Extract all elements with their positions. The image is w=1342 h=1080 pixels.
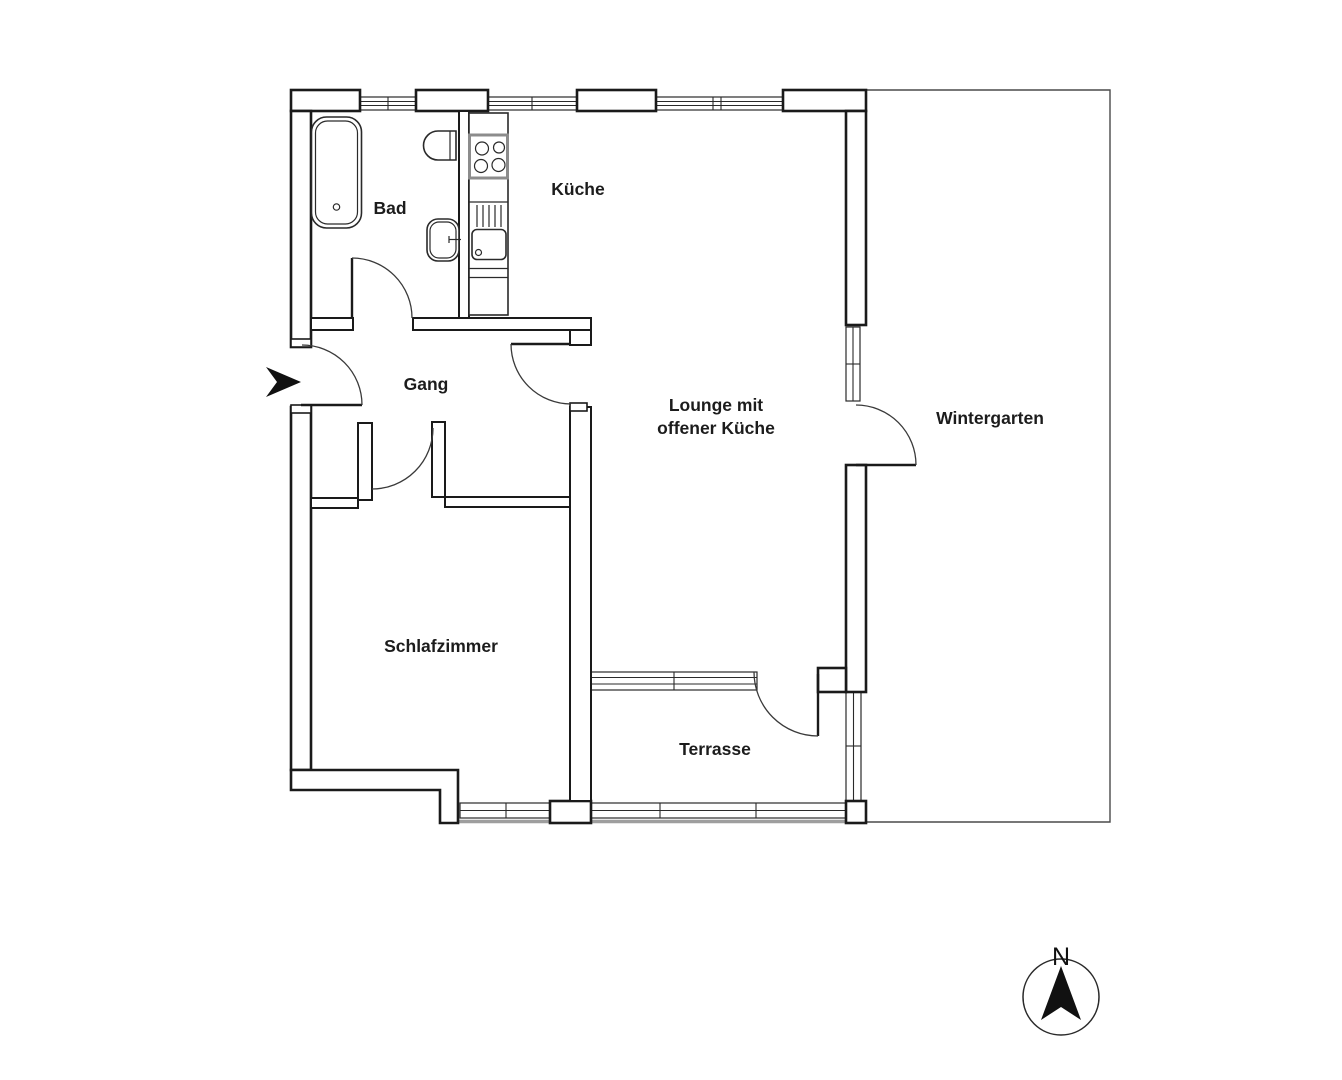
wintergarten-door-swing bbox=[856, 405, 916, 465]
room-label-schlafzimmer: Schlafzimmer bbox=[384, 636, 498, 656]
pier-terrasse-door bbox=[818, 668, 846, 692]
wall-east-lower bbox=[846, 465, 866, 692]
doors bbox=[301, 258, 916, 736]
terrasse-door-swing bbox=[754, 672, 818, 736]
wall-top-4 bbox=[783, 90, 866, 111]
entrance-door-swing bbox=[302, 345, 362, 405]
wall-top-1 bbox=[291, 90, 360, 111]
entrance-jamb-bottom bbox=[291, 405, 311, 413]
window-lounge-north bbox=[656, 97, 783, 110]
wintergarten-boundary bbox=[866, 90, 1110, 822]
north-arrow-icon bbox=[1041, 966, 1081, 1020]
room-label-lounge-line2: offener Küche bbox=[657, 418, 775, 438]
floorplan-drawing: Bad Küche Gang Lounge mit offener Küche … bbox=[0, 0, 1342, 1080]
pier-schlafzimmer-terrasse bbox=[550, 801, 591, 823]
wall-lounge-west bbox=[570, 407, 591, 801]
floorplan-page: Bad Küche Gang Lounge mit offener Küche … bbox=[0, 0, 1342, 1080]
wall-west-lower bbox=[291, 407, 311, 770]
bathroom-fixtures bbox=[312, 117, 462, 261]
stub-schlafzimmer-door-left bbox=[358, 423, 372, 500]
schlafzimmer-door-swing bbox=[372, 428, 433, 489]
pier-terrasse-southeast bbox=[846, 801, 866, 823]
wall-bad-kueche bbox=[459, 111, 469, 318]
bad-door-swing bbox=[352, 258, 412, 318]
wall-schlafzimmer-south bbox=[291, 770, 458, 823]
stove-icon bbox=[470, 135, 508, 178]
toilet-icon bbox=[424, 131, 457, 160]
room-label-lounge-line1: Lounge mit bbox=[669, 395, 763, 415]
wall-gang-north-left bbox=[311, 318, 353, 330]
wall-gang-lounge-jamb bbox=[570, 330, 591, 345]
gang-door-swing bbox=[511, 344, 571, 404]
gang-door-jamb bbox=[570, 403, 587, 411]
room-label-terrasse: Terrasse bbox=[679, 739, 751, 759]
room-label-kueche: Küche bbox=[551, 179, 605, 199]
room-label-wintergarten: Wintergarten bbox=[936, 408, 1044, 428]
wall-top-2 bbox=[416, 90, 488, 111]
bathtub-icon bbox=[312, 117, 362, 228]
wall-gang-north-right bbox=[413, 318, 591, 330]
north-compass: N bbox=[1023, 943, 1099, 1035]
wall-schlafzimmer-north-left bbox=[311, 498, 358, 508]
wall-west-upper bbox=[291, 111, 311, 347]
wintergarten-outline bbox=[866, 90, 1110, 822]
room-label-bad: Bad bbox=[373, 198, 406, 218]
entrance-arrow-icon bbox=[266, 367, 301, 397]
wall-top-3 bbox=[577, 90, 656, 111]
wall-schlafzimmer-north-right bbox=[445, 497, 570, 507]
kitchen-fixtures bbox=[469, 113, 508, 315]
wall-east-upper bbox=[846, 111, 866, 325]
stub-schlafzimmer-door-right bbox=[432, 422, 445, 497]
room-label-gang: Gang bbox=[404, 374, 449, 394]
